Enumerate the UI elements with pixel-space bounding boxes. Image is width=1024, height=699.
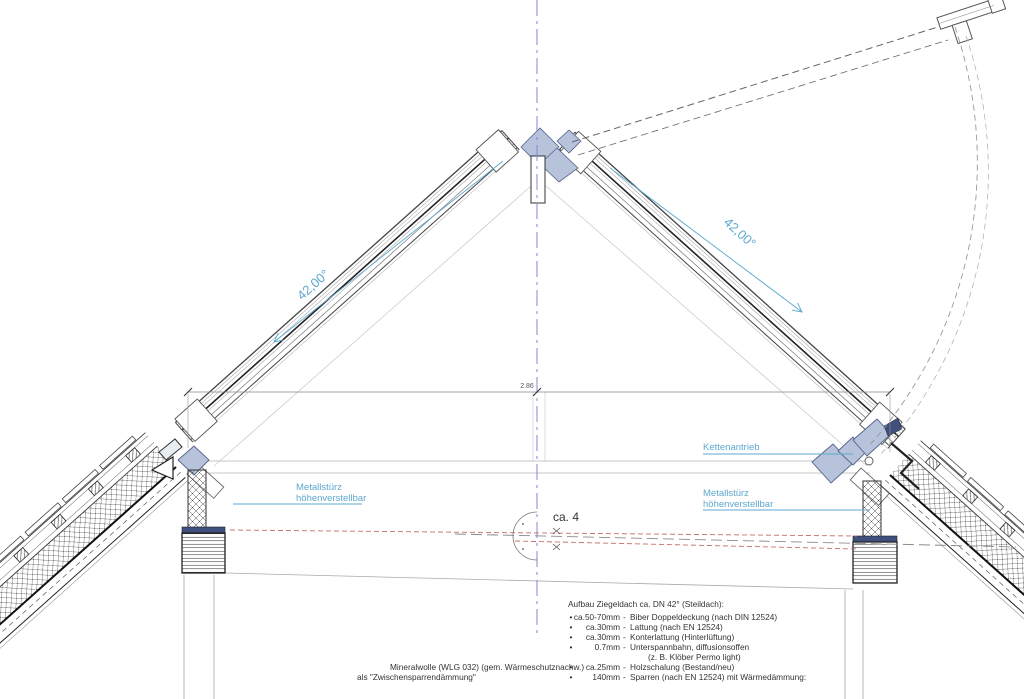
ridge-detail (521, 128, 581, 203)
spec-bullet: • (570, 612, 573, 622)
spec-sep: - (623, 632, 626, 642)
spec-sep: - (623, 672, 626, 682)
roof-section-drawing: 2.86 ca. 4 42,00° 42,00° Kettenantrieb M… (0, 0, 1024, 699)
spec-bullet: • (570, 632, 573, 642)
spec-measure: 0.7mm (595, 642, 620, 652)
spec-bullet: • (570, 622, 573, 632)
spec-desc: Biber Doppeldeckung (nach DIN 12524) (630, 612, 777, 622)
spec-sep: - (623, 642, 626, 652)
spec-measure: ca.50-70mm (574, 612, 620, 622)
spec-bullet: • (570, 672, 573, 682)
spec-desc-continuation: (z. B. Klöber Permo light) (648, 652, 741, 662)
spec-desc: Konterlattung (Hinterlüftung) (630, 632, 734, 642)
metallsturz-right-label-2: höhenverstellbar (703, 499, 773, 510)
insulation-note-line2: als "Zwischensparrendämmung" (357, 672, 476, 682)
left-roof-angle-label: 42,00° (294, 266, 332, 302)
metallsturz-right-label-1: Metallstürz (703, 488, 749, 499)
spec-desc: Holzschalung (Bestand/neu) (630, 662, 734, 672)
spec-desc: Unterspannbahn, diffusionsoffen (630, 642, 750, 652)
metallsturz-left-label-2: höhenverstellbar (296, 493, 366, 504)
floor-slope-label: ca. 4 (553, 510, 579, 524)
metallsturz-left-label-1: Metallstürz (296, 482, 342, 493)
spec-desc: Sparren (nach EN 12524) mit Wärmedämmung… (630, 672, 806, 682)
spec-desc: Lattung (nach EN 12524) (630, 622, 723, 632)
level-annotation: ca. 4 (230, 510, 1016, 560)
swing-arc-outer (868, 27, 977, 447)
ridge-dimension-value: 2.86 (520, 383, 534, 390)
spec-measure: ca.30mm (586, 622, 620, 632)
roof-window-right (557, 130, 907, 449)
roof-window-left (173, 128, 520, 442)
spec-sep: - (623, 612, 626, 622)
spec-sep: - (623, 662, 626, 672)
spec-bullet: • (570, 642, 573, 652)
roof-buildup-spec: Aufbau Ziegeldach ca. DN 42° (Steildach)… (568, 599, 806, 682)
insulation-note-line1: Mineralwolle (WLG 032) (gem. Wärmeschutz… (390, 662, 584, 672)
insulation-note: Mineralwolle (WLG 032) (gem. Wärmeschutz… (357, 662, 584, 682)
right-roof-angle-label: 42,00° (721, 214, 759, 250)
spec-sep: - (623, 622, 626, 632)
spec-measure: ca.30mm (586, 632, 620, 642)
spec-measure: ca.25mm (586, 662, 620, 672)
existing-roof-right (878, 436, 1024, 695)
kettenantrieb-label: Kettenantrieb (703, 442, 760, 453)
spec-title: Aufbau Ziegeldach ca. DN 42° (Steildach)… (568, 599, 724, 609)
right-wall-assembly (812, 418, 919, 583)
open-sash-dashed (572, 0, 1011, 455)
cad-canvas: 2.86 ca. 4 42,00° 42,00° Kettenantrieb M… (0, 0, 1024, 699)
dimension-line: 2.86 (184, 383, 894, 452)
interior-lines (184, 186, 870, 699)
spec-measure: 140mm (592, 672, 620, 682)
